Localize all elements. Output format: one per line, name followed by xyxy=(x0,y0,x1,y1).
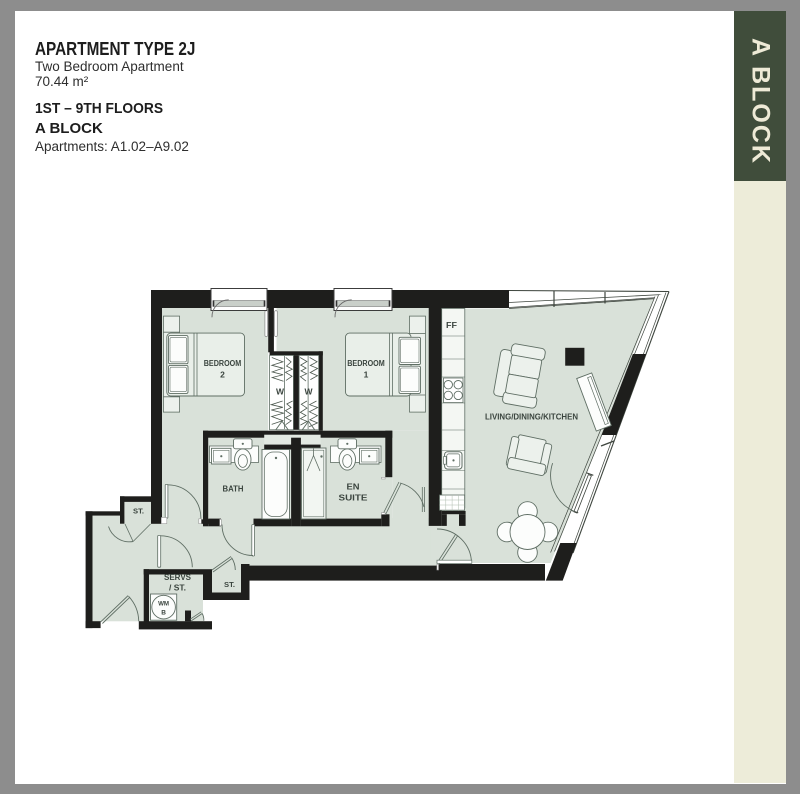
svg-text:BEDROOM: BEDROOM xyxy=(204,359,242,368)
svg-text:LIVING/DINING/KITCHEN: LIVING/DINING/KITCHEN xyxy=(485,413,578,422)
svg-text:1: 1 xyxy=(364,370,369,380)
svg-text:BEDROOM: BEDROOM xyxy=(347,359,385,368)
svg-text:WM: WM xyxy=(158,601,169,608)
svg-text:BATH: BATH xyxy=(223,485,244,494)
svg-text:2: 2 xyxy=(220,370,225,380)
svg-text:B: B xyxy=(161,610,166,617)
svg-text:ST.: ST. xyxy=(133,507,144,516)
svg-text:W: W xyxy=(304,387,313,397)
svg-text:SUITE: SUITE xyxy=(339,494,369,503)
svg-text:FF: FF xyxy=(446,321,457,330)
svg-text:W: W xyxy=(276,387,285,397)
svg-text:/ ST.: / ST. xyxy=(169,584,186,593)
svg-text:EN: EN xyxy=(347,483,360,492)
svg-text:SERVS: SERVS xyxy=(164,573,192,582)
svg-text:ST.: ST. xyxy=(224,580,235,589)
